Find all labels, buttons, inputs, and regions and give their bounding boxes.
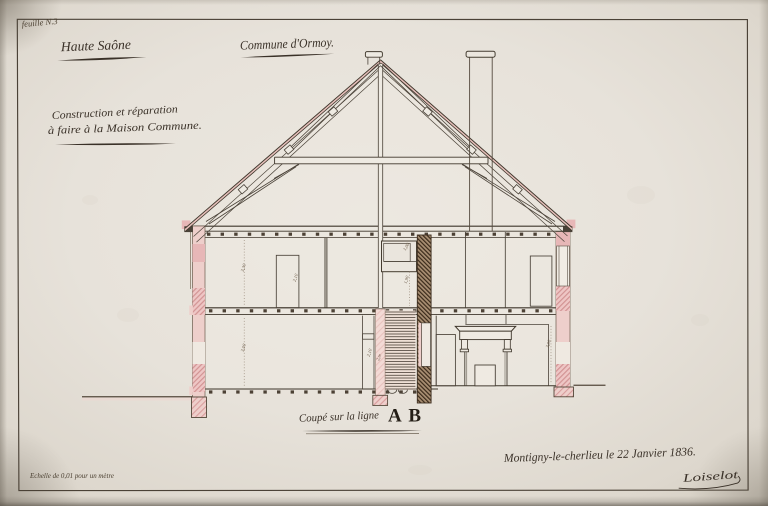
- svg-text:Haute Saône: Haute Saône: [60, 37, 131, 54]
- svg-text:Echelle de 0,01 pour un mètre: Echelle de 0,01 pour un mètre: [29, 472, 114, 480]
- svg-text:A B: A B: [388, 406, 423, 427]
